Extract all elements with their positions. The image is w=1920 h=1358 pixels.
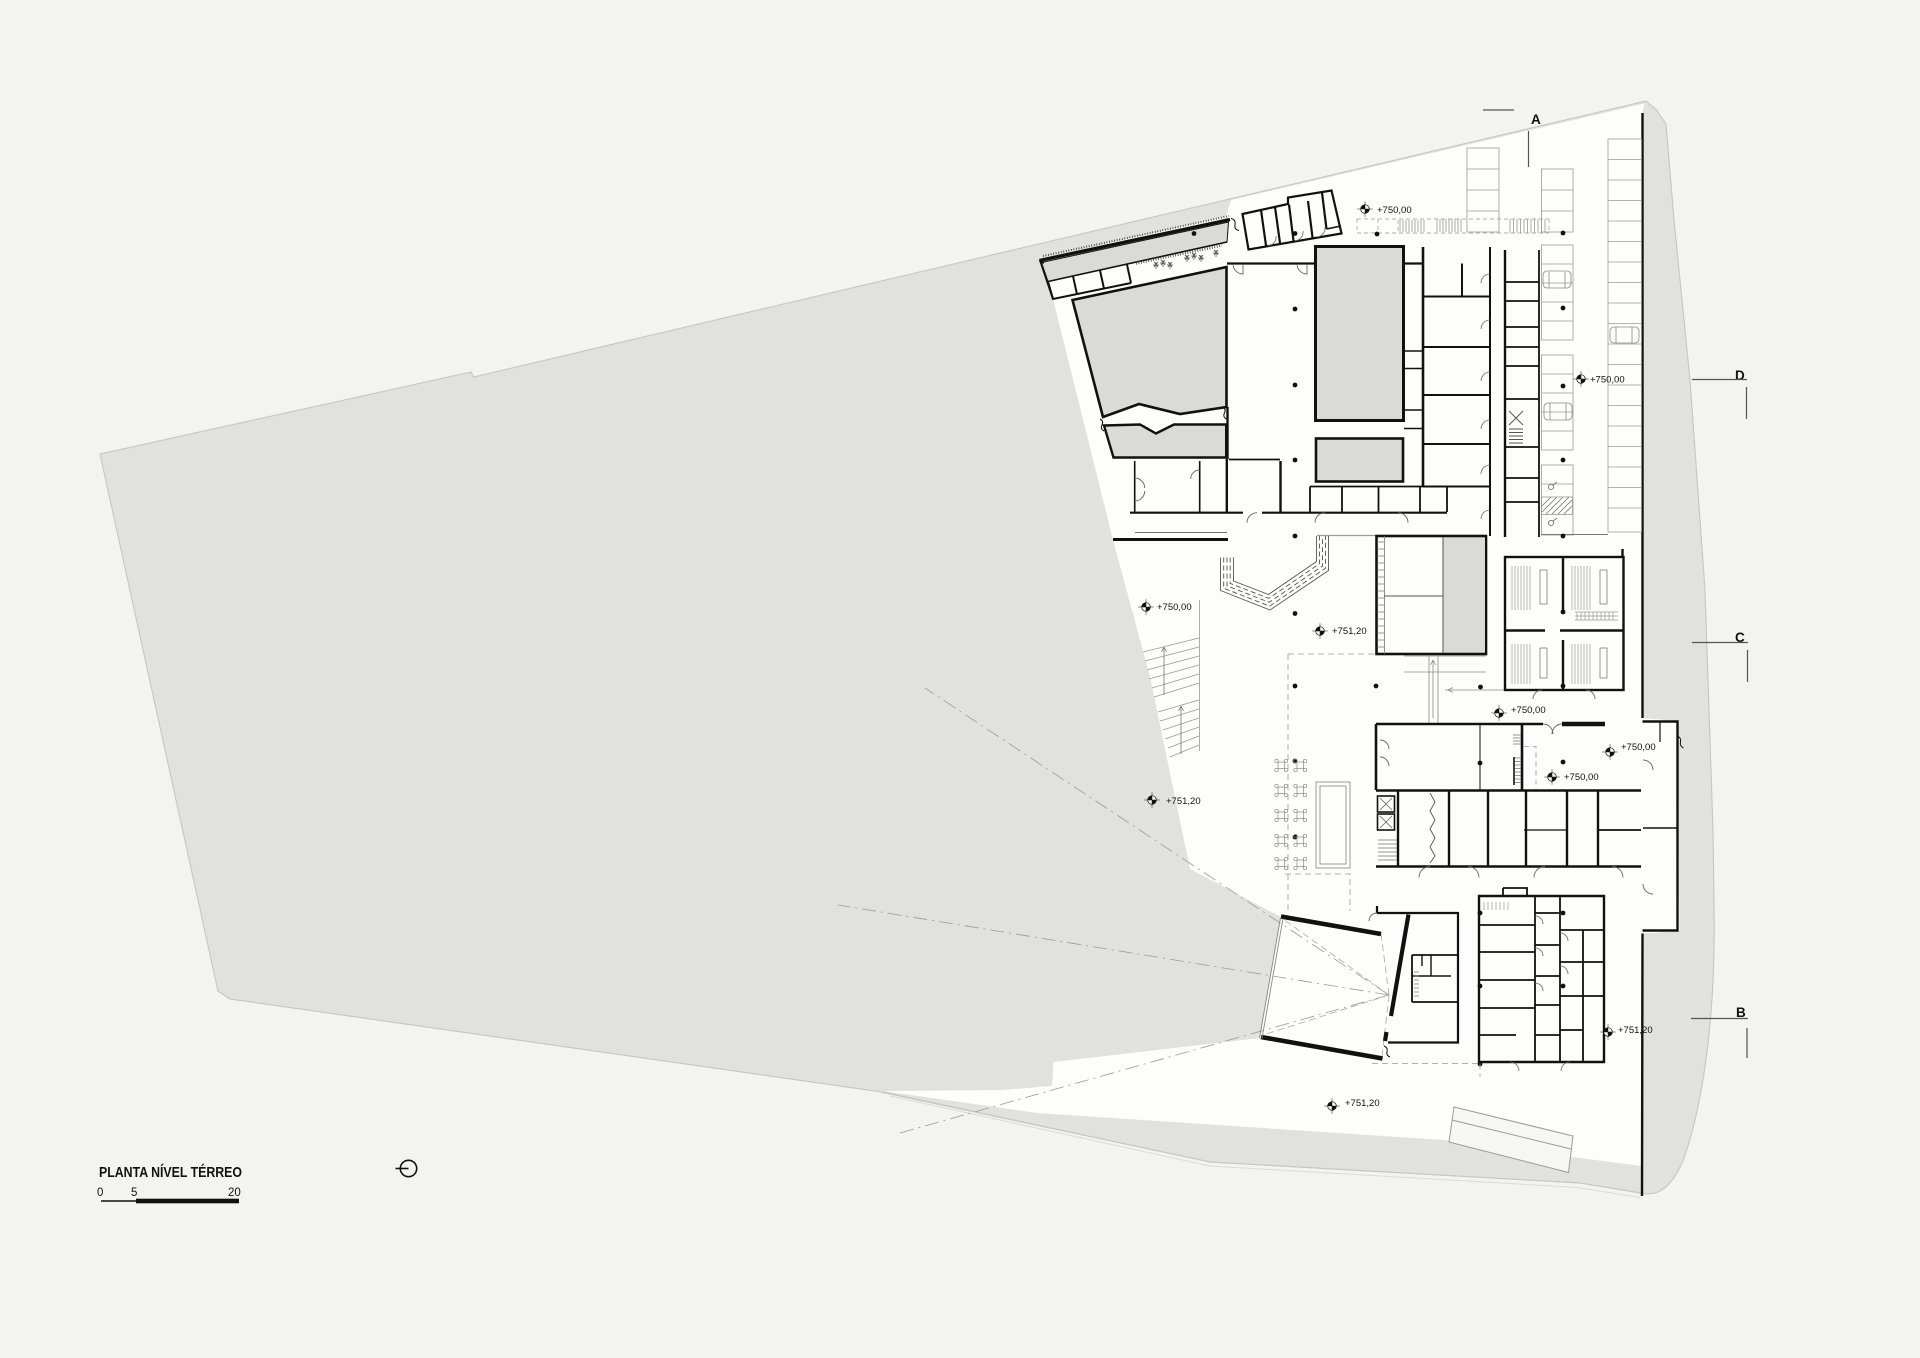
svg-text:+750,00: +750,00 [1377,205,1412,216]
svg-text:B: B [1736,1005,1746,1020]
svg-text:0: 0 [97,1187,103,1199]
svg-text:5: 5 [131,1187,137,1199]
svg-text:+750,00: +750,00 [1621,742,1656,753]
svg-text:+750,00: +750,00 [1157,602,1192,613]
svg-text:D: D [1735,368,1745,383]
svg-text:+750,00: +750,00 [1564,772,1599,783]
svg-text:A: A [1531,112,1541,127]
svg-text:+750,00: +750,00 [1590,375,1625,386]
svg-text:+751,20: +751,20 [1345,1098,1380,1109]
svg-text:+750,00: +750,00 [1511,705,1546,716]
svg-text:+751,20: +751,20 [1332,626,1367,637]
svg-text:+751,20: +751,20 [1166,796,1201,807]
svg-text:20: 20 [228,1187,241,1199]
svg-text:PLANTA NÍVEL TÉRREO: PLANTA NÍVEL TÉRREO [99,1164,242,1181]
svg-text:+751,20: +751,20 [1618,1025,1653,1036]
